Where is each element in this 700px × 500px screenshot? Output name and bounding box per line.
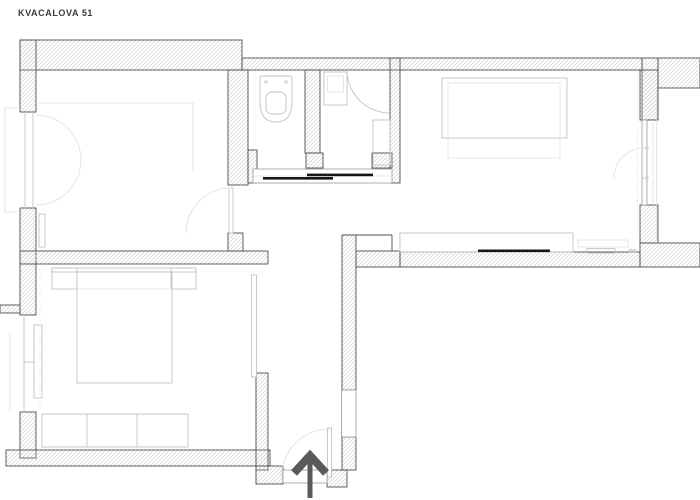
balcony-door-swing-arc xyxy=(614,148,644,178)
wall-segment xyxy=(640,70,658,120)
toilet-button xyxy=(285,81,287,83)
radiator xyxy=(39,214,45,247)
living-room-furniture-outline xyxy=(36,103,193,172)
wall-segment xyxy=(400,252,640,267)
wall-segment xyxy=(372,153,392,168)
wall-segment xyxy=(658,58,700,88)
sideboard xyxy=(400,233,573,252)
wall-segment xyxy=(356,251,400,267)
doors xyxy=(186,169,392,483)
door-stop xyxy=(629,250,632,253)
bedroom-door-leaf xyxy=(252,275,257,377)
balcony-door-leaf xyxy=(642,120,647,205)
toilet-inner xyxy=(266,92,286,114)
headboard-strip xyxy=(52,268,196,272)
wall-segment xyxy=(640,243,700,267)
sideboard-front xyxy=(478,250,550,253)
bed-right xyxy=(442,78,567,138)
wall-segment xyxy=(228,233,243,251)
living-room-door-leaf xyxy=(229,188,233,233)
wall-segment xyxy=(0,305,20,313)
casement-swing-arc xyxy=(36,115,81,160)
wall-segment xyxy=(390,58,400,183)
wall-segment xyxy=(20,40,242,70)
sliding-door-wc xyxy=(263,177,333,180)
windows xyxy=(5,88,657,412)
corner-shower xyxy=(347,70,390,113)
floor-plan xyxy=(0,0,700,500)
nightstand xyxy=(52,268,77,289)
wall-niche xyxy=(342,390,357,437)
wall-segment xyxy=(342,235,356,390)
window-leaf xyxy=(34,325,42,398)
washing-machine-inner xyxy=(328,76,344,92)
toilet-button xyxy=(265,81,267,83)
arrow-shaft xyxy=(308,461,313,498)
bed-right-duvet xyxy=(448,83,560,158)
living-room-door-arc xyxy=(186,188,231,233)
sliding-door-bathroom xyxy=(307,174,373,177)
wall-segment xyxy=(305,70,320,153)
wall-segment xyxy=(20,40,36,112)
wall-segment xyxy=(20,251,268,264)
nightstand xyxy=(171,268,196,289)
walls xyxy=(0,40,700,487)
wall-segment xyxy=(242,58,642,70)
wall-segment xyxy=(228,70,248,185)
wall-segment xyxy=(306,153,323,168)
wall-segment xyxy=(640,205,658,243)
wall-segment xyxy=(342,437,356,470)
wall-segment xyxy=(6,450,270,466)
door-stop xyxy=(633,250,636,253)
window-sill-exterior xyxy=(5,108,20,212)
wall-segment xyxy=(256,373,268,470)
casement-swing-arc xyxy=(36,160,81,205)
wardrobe xyxy=(42,414,188,447)
wall-segment xyxy=(256,466,283,484)
radiator-right xyxy=(578,240,628,247)
